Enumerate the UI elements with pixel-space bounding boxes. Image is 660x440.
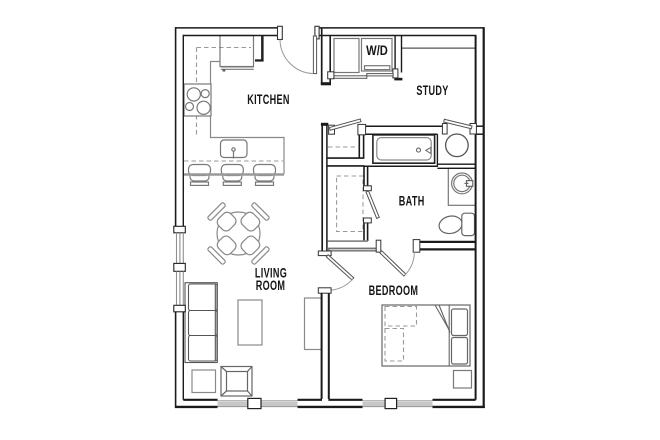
svg-text:W/D: W/D [366,43,388,58]
svg-text:ROOM: ROOM [256,277,286,294]
svg-text:BATH: BATH [399,192,425,209]
svg-text:BEDROOM: BEDROOM [369,282,419,299]
svg-text:STUDY: STUDY [416,82,448,99]
svg-text:KITCHEN: KITCHEN [247,91,290,108]
